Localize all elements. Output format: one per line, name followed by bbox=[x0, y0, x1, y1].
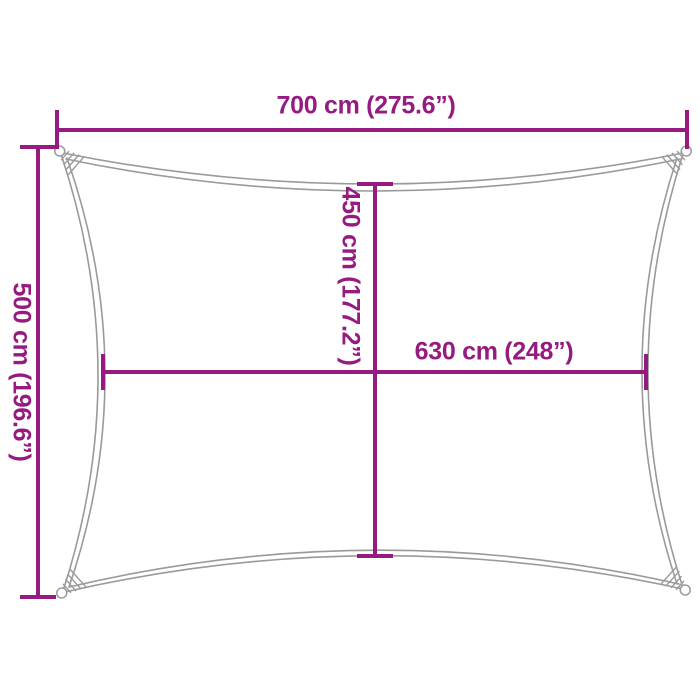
inner-height-label: 450 cm (177.2”) bbox=[336, 187, 365, 366]
sail-right-edge-outer bbox=[648, 154, 683, 588]
sail-left-edge-inner bbox=[67, 158, 105, 587]
sail-top-edge-outer bbox=[63, 153, 683, 184]
sail-bottom-edge-outer bbox=[65, 556, 683, 592]
top-width-label: 700 cm (275.6”) bbox=[277, 92, 456, 121]
dimension-diagram: 700 cm (275.6”) 500 cm (196.6”) 450 cm (… bbox=[0, 0, 700, 700]
left-height-label: 500 cm (196.6”) bbox=[7, 283, 36, 462]
sail-left-edge-outer bbox=[61, 154, 98, 591]
inner-width-label: 630 cm (248”) bbox=[415, 338, 574, 367]
corner-ring-bottom-left bbox=[50, 569, 86, 605]
